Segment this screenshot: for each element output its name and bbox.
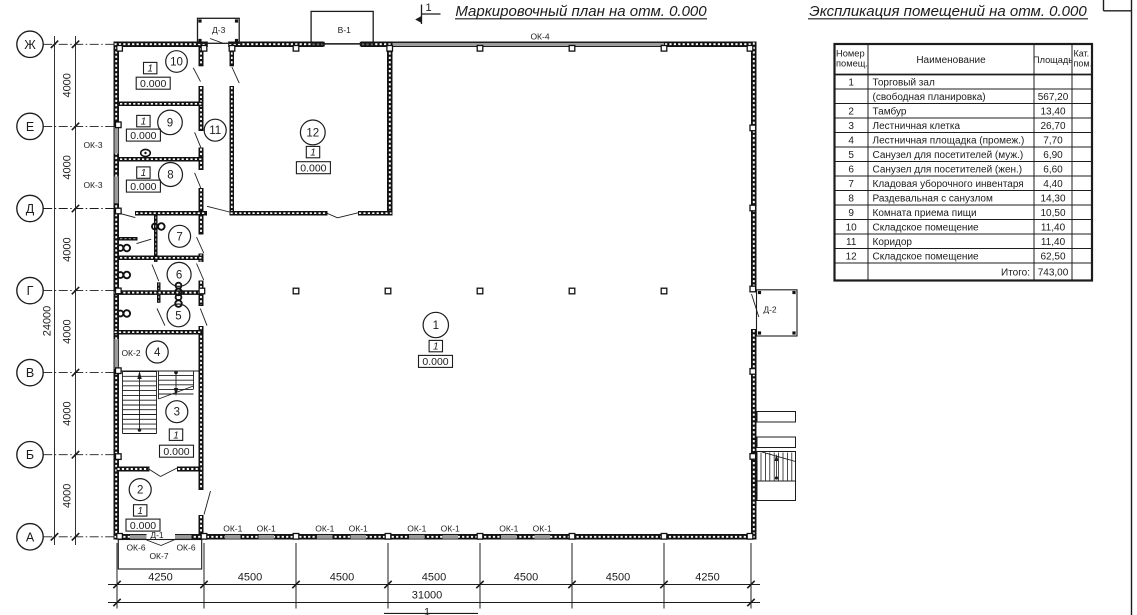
svg-text:31000: 31000 [412,590,443,602]
svg-text:Г: Г [27,284,34,298]
svg-text:А: А [26,530,35,544]
svg-text:4000: 4000 [62,155,74,179]
svg-text:10: 10 [170,57,183,69]
svg-text:Кладовая уборочного инвентаря: Кладовая уборочного инвентаря [873,178,1024,190]
svg-text:567,20: 567,20 [1038,92,1069,103]
svg-text:1: 1 [147,64,153,75]
svg-text:Лестничная площадка (промеж.): Лестничная площадка (промеж.) [873,135,1025,146]
svg-text:1: 1 [141,117,147,128]
svg-text:1: 1 [173,430,179,441]
svg-text:Кат.: Кат. [1074,49,1090,59]
svg-text:ОК-1: ОК-1 [315,524,334,534]
svg-text:9: 9 [848,208,854,219]
svg-text:1: 1 [424,607,430,615]
svg-text:Комната приема пищи: Комната приема пищи [873,208,977,219]
svg-text:7: 7 [176,231,182,243]
svg-text:В-1: В-1 [338,25,352,35]
svg-text:Б: Б [26,448,34,462]
svg-text:ОК-1: ОК-1 [257,524,276,534]
svg-text:4000: 4000 [62,484,74,508]
svg-text:0.000: 0.000 [130,130,156,142]
svg-text:Раздевальная с санузлом: Раздевальная с санузлом [873,193,993,204]
svg-text:Площадь: Площадь [1033,55,1073,65]
svg-text:Лестничная клетка: Лестничная клетка [873,121,961,132]
svg-text:4250: 4250 [148,572,172,584]
svg-text:0.000: 0.000 [140,78,166,90]
svg-text:1: 1 [425,2,431,14]
svg-text:2: 2 [137,485,143,497]
svg-text:9: 9 [167,117,173,129]
svg-text:ОК-6: ОК-6 [176,543,195,553]
svg-text:6,60: 6,60 [1043,164,1063,175]
svg-text:1: 1 [433,320,439,332]
svg-text:7,70: 7,70 [1043,135,1063,146]
svg-text:1: 1 [141,168,147,179]
svg-text:4: 4 [848,135,854,146]
svg-text:ОК-7: ОК-7 [149,551,168,561]
svg-text:10,50: 10,50 [1040,208,1065,219]
svg-text:12: 12 [306,127,319,139]
svg-text:1: 1 [433,342,439,353]
svg-text:3: 3 [174,407,180,419]
svg-text:1: 1 [848,77,854,88]
svg-text:6: 6 [176,269,182,281]
svg-text:4500: 4500 [606,572,630,584]
svg-text:Экспликация помещений на отм.: Экспликация помещений на отм. 0.000 [809,3,1087,20]
svg-text:1: 1 [137,506,143,517]
svg-text:Д: Д [26,202,35,216]
svg-text:ОК-6: ОК-6 [126,543,145,553]
svg-text:5: 5 [848,150,854,161]
svg-text:0.000: 0.000 [300,163,326,175]
svg-text:Ж: Ж [24,38,36,52]
svg-text:пом.: пом. [1074,59,1093,69]
svg-text:14,30: 14,30 [1040,193,1065,204]
svg-text:Д-2: Д-2 [763,305,777,315]
svg-text:Санузел для посетителей (муж.): Санузел для посетителей (муж.) [873,150,1024,161]
svg-text:4000: 4000 [62,319,74,343]
svg-text:Складское помещение: Складское помещение [873,222,980,233]
svg-text:Коридор: Коридор [873,237,913,248]
svg-text:6,90: 6,90 [1043,150,1063,161]
svg-text:Е: Е [26,120,34,134]
svg-text:4500: 4500 [514,572,538,584]
svg-text:Номер: Номер [836,49,865,59]
svg-text:4000: 4000 [62,237,74,261]
svg-text:11: 11 [209,125,221,137]
svg-text:11,40: 11,40 [1041,237,1066,248]
svg-text:0.000: 0.000 [130,181,156,193]
svg-text:8: 8 [848,193,854,204]
svg-text:4250: 4250 [695,572,719,584]
svg-text:6: 6 [848,164,854,175]
svg-text:(свободная планировка): (свободная планировка) [873,91,986,103]
svg-text:12: 12 [846,251,858,262]
svg-text:Санузел для посетителей (жен.): Санузел для посетителей (жен.) [873,164,1023,175]
svg-text:Д-3: Д-3 [212,25,226,35]
svg-text:4500: 4500 [238,572,262,584]
svg-text:ОК-1: ОК-1 [349,524,368,534]
svg-text:ОК-1: ОК-1 [407,524,426,534]
svg-text:Маркировочный план на отм. 0.0: Маркировочный план на отм. 0.000 [455,3,707,20]
svg-text:Складское помещение: Складское помещение [873,251,980,262]
svg-text:4500: 4500 [422,572,446,584]
svg-text:ОК-1: ОК-1 [499,524,518,534]
svg-text:62,50: 62,50 [1040,251,1065,262]
svg-text:24000: 24000 [42,306,54,337]
svg-text:4000: 4000 [62,401,74,425]
svg-text:Итого:: Итого: [1001,268,1030,279]
svg-text:ОК-1: ОК-1 [533,524,552,534]
svg-text:ОК-2: ОК-2 [121,348,140,358]
svg-text:0.000: 0.000 [422,356,448,368]
svg-text:11: 11 [846,237,857,248]
svg-text:4,40: 4,40 [1043,179,1063,190]
svg-text:13,40: 13,40 [1040,106,1065,117]
svg-text:ОК-1: ОК-1 [441,524,460,534]
svg-text:1: 1 [310,148,316,159]
svg-text:Наименование: Наименование [916,55,986,66]
svg-text:7: 7 [848,179,854,190]
svg-text:ОК-3: ОК-3 [83,180,102,190]
svg-text:4500: 4500 [330,572,354,584]
svg-text:4: 4 [154,347,161,359]
svg-text:0.000: 0.000 [163,446,189,458]
svg-text:8: 8 [167,170,173,182]
svg-text:ОК-3: ОК-3 [83,140,102,150]
svg-text:26,70: 26,70 [1040,121,1065,132]
svg-text:В: В [26,366,34,380]
svg-text:743,00: 743,00 [1038,268,1069,279]
svg-text:2: 2 [848,106,854,117]
svg-text:4000: 4000 [62,73,74,97]
svg-text:3: 3 [848,121,854,132]
svg-text:10: 10 [846,222,858,233]
svg-text:помещ.: помещ. [836,59,868,69]
svg-text:ОК-4: ОК-4 [530,31,549,41]
svg-text:5: 5 [175,310,181,322]
svg-text:0.000: 0.000 [130,520,156,532]
svg-text:ОК-1: ОК-1 [223,524,242,534]
svg-text:Торговый зал: Торговый зал [873,77,935,88]
svg-text:11,40: 11,40 [1041,222,1066,233]
svg-text:Тамбур: Тамбур [873,105,907,117]
